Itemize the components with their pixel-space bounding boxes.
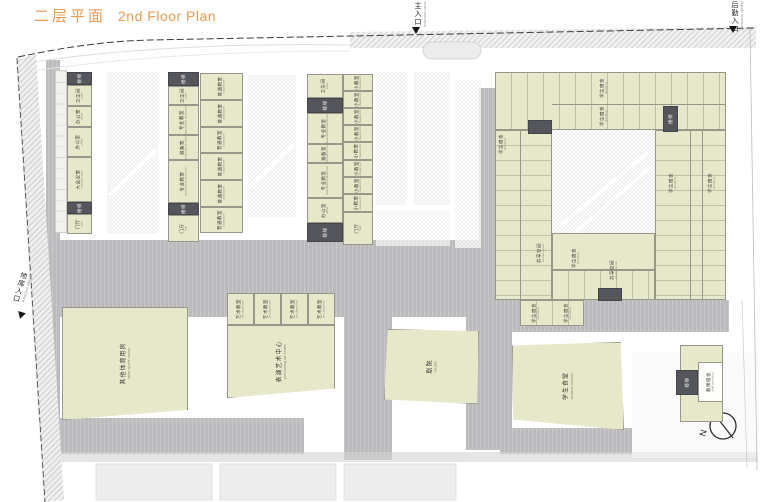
- service-entrance-arrow-icon: [729, 26, 737, 33]
- art-classroom-1: 艺术教室art classroom: [227, 293, 254, 325]
- dorm-east-corridor-line-2: [702, 130, 703, 300]
- court-2: [220, 464, 336, 500]
- void-3: [455, 80, 481, 248]
- wing3-special-classroom-1: 专业教室specialized classroom: [307, 113, 343, 144]
- wing1-toilet: 卫生间toilet: [67, 85, 92, 106]
- dorm-south-annex: [520, 300, 584, 326]
- wing3-small-classroom-3: 小教室classroom: [343, 108, 373, 125]
- wing2-classroom-5: 普通教室classroom: [200, 180, 243, 207]
- dorm-south-space: [552, 233, 655, 270]
- wing3-office: 办公室office: [307, 198, 343, 223]
- plaza-dorm-south: [479, 300, 729, 332]
- wing3-small-classroom-2: 小教室classroom: [343, 91, 373, 108]
- wing1-balcony-strip: [55, 70, 67, 233]
- wing3-stair-bottom: 楼梯: [307, 223, 343, 242]
- wing2-toilet: 卫生间toilet: [168, 86, 199, 105]
- court-1: [96, 464, 212, 500]
- dorm-stair-1: [528, 120, 552, 134]
- wing3-toilet: 卫生间toilet: [307, 74, 343, 98]
- wing3-small-classroom-6: 小教室classroom: [343, 160, 373, 177]
- wing3-small-classroom-1: 小教室classroom: [343, 74, 373, 91]
- void-1: [376, 72, 406, 205]
- dorm-east-corridor-line-1: [690, 130, 691, 300]
- wing3-stair-top: 楼梯: [307, 98, 343, 113]
- wing3-small-classroom-8: 小教室classroom: [343, 194, 373, 212]
- wing3-hall: 门厅hall: [343, 212, 373, 245]
- art-classroom-3: 艺术教室art classroom: [281, 293, 308, 325]
- wing2-classroom-6: 普通教室classroom: [200, 207, 243, 233]
- title-en: 2nd Floor Plan: [118, 8, 216, 24]
- main-entrance-label: 主入口main entrance: [412, 2, 428, 27]
- canteen-building: 学生食堂student canteen: [512, 342, 624, 430]
- wing2-special-classroom-2: 专业教室specialized classroom: [168, 160, 199, 203]
- floor-plan-canvas: 楼梯 卫生间toilet 办公室office 办公室office 大会议室mee…: [0, 0, 760, 502]
- wing2-classroom-2: 普通教室classroom: [200, 100, 243, 127]
- main-entrance-arrow-icon: [412, 27, 420, 34]
- sports-building: 其他体育用房other sports rooms: [62, 307, 188, 420]
- wing2-classroom-3: 普通教室classroom: [200, 127, 243, 153]
- wing1-office-2: 办公室office: [67, 127, 92, 157]
- plaza-south-west: [58, 418, 304, 454]
- wing2-classroom-4: 普通教室classroom: [200, 153, 243, 180]
- dorm-west-arm-corridor-line: [520, 130, 521, 300]
- road-curve-2: [26, 51, 350, 72]
- plaza-south-canteen: [500, 428, 632, 454]
- wing1-stair-top: 楼梯: [67, 72, 92, 85]
- page-title: 二层平面 2nd Floor Plan: [34, 5, 216, 26]
- staff-dorm-room: 教师宿舍staff dormitory: [698, 362, 723, 402]
- dorm-stair-3: [598, 288, 622, 301]
- plaza-center-walk: [344, 245, 392, 460]
- staff-dorm-stair: 楼梯: [676, 370, 698, 395]
- wing2-prep-room: 准备室preparation room: [168, 135, 199, 160]
- performing-art-center: 表演艺术中心performing art center: [227, 325, 335, 398]
- wing3-prep-room: 准备室preparation room: [307, 144, 343, 163]
- wing2-special-classroom-1: 专业教室specialized classroom: [168, 105, 199, 135]
- wing3-special-classroom-2: 专业教室specialized classroom: [307, 163, 343, 198]
- wing1-meeting-room: 大会议室meeting room: [67, 157, 92, 202]
- wing3-small-classroom-5: 小教室classroom: [343, 142, 373, 160]
- plaza-dorm-west: [479, 88, 495, 302]
- void-2: [414, 72, 450, 205]
- wing3-small-classroom-4: 小教室classroom: [343, 125, 373, 142]
- art-classroom-4: 艺术教室art classroom: [308, 293, 335, 325]
- dorm-west-arm: [495, 130, 552, 300]
- void-4: [376, 210, 450, 246]
- dorm-north-arm-corridor-line: [552, 104, 726, 105]
- wing1-office-1: 办公室office: [67, 106, 92, 127]
- art-classroom-2: 艺术教室art classroom: [254, 293, 281, 325]
- planter-pill: [423, 42, 481, 59]
- court-3: [344, 464, 456, 500]
- wing3-small-classroom-7: 小教室classroom: [343, 177, 373, 194]
- courtyard-2: [248, 75, 296, 217]
- dorm-stair-2: 楼梯: [663, 106, 678, 132]
- theater-building: 剧院theater: [384, 329, 479, 404]
- wing2-hall: 门厅hall: [168, 215, 199, 242]
- wing2-classroom-1: 普通教室classroom: [200, 73, 243, 100]
- wing2-stair-bottom: 楼梯: [168, 203, 199, 215]
- north-verge: [350, 27, 756, 48]
- wing1-stair-bottom: 楼梯: [67, 202, 92, 214]
- wing2-stair-top: 楼梯: [168, 72, 199, 86]
- wing1-hall: 门厅hall: [67, 214, 92, 234]
- title-zh: 二层平面: [34, 5, 106, 26]
